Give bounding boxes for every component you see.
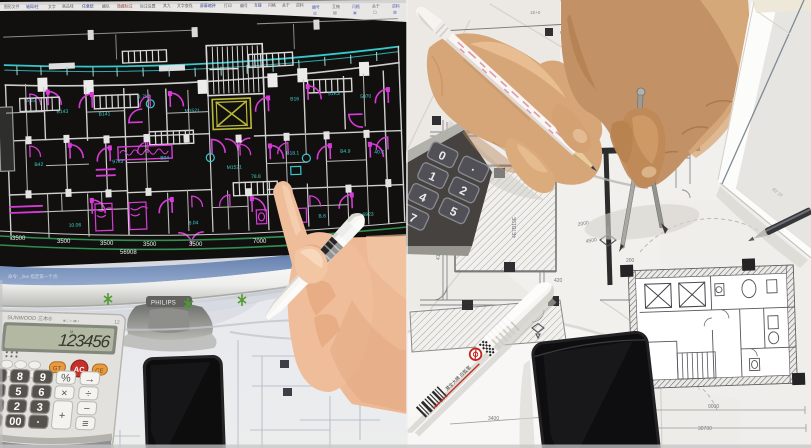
svg-text:编号: 编号 bbox=[240, 3, 248, 8]
svg-text:9: 9 bbox=[39, 372, 46, 384]
svg-text:30700: 30700 bbox=[698, 426, 712, 432]
svg-text:97k3: 97k3 bbox=[112, 159, 123, 165]
svg-text:图形文件: 图形文件 bbox=[4, 4, 20, 9]
svg-text:命令: _line 指定第一个点:: 命令: _line 指定第一个点: bbox=[8, 273, 59, 280]
svg-text:200: 200 bbox=[626, 258, 635, 264]
svg-text:3500: 3500 bbox=[143, 242, 157, 248]
svg-text:互接: 互接 bbox=[254, 3, 262, 8]
svg-text:编号: 编号 bbox=[312, 5, 320, 10]
svg-text:3: 3 bbox=[36, 402, 43, 414]
svg-text:轴网/柱: 轴网/柱 bbox=[26, 4, 39, 9]
svg-text:9000: 9000 bbox=[708, 404, 719, 410]
svg-text:6: 6 bbox=[38, 387, 45, 399]
svg-text:12: 12 bbox=[114, 320, 120, 326]
svg-text:B4.9: B4.9 bbox=[340, 148, 351, 154]
svg-text:B141: B141 bbox=[99, 111, 111, 117]
svg-text:78.8: 78.8 bbox=[251, 174, 261, 180]
svg-text:51K3: 51K3 bbox=[328, 91, 340, 97]
svg-text:2: 2 bbox=[13, 401, 20, 413]
svg-text:3500: 3500 bbox=[100, 241, 114, 247]
svg-text:打印: 打印 bbox=[224, 3, 232, 8]
svg-text:3500: 3500 bbox=[57, 239, 71, 245]
svg-text:00: 00 bbox=[9, 416, 22, 428]
svg-text:B.6: B.6 bbox=[318, 213, 326, 219]
svg-text:资料: 资料 bbox=[296, 2, 304, 7]
svg-text:▢: ▢ bbox=[373, 10, 377, 15]
svg-text:7000: 7000 bbox=[253, 239, 267, 245]
svg-text:÷: ÷ bbox=[85, 388, 92, 400]
svg-text:M1521: M1521 bbox=[227, 164, 243, 171]
svg-text:互掩: 互掩 bbox=[332, 4, 340, 9]
svg-text:B04: B04 bbox=[160, 155, 169, 161]
svg-text:1E+0: 1E+0 bbox=[530, 10, 541, 15]
svg-text:高品味: 高品味 bbox=[62, 4, 74, 9]
svg-text:资料: 资料 bbox=[392, 3, 400, 8]
svg-text:闪格: 闪格 bbox=[352, 4, 360, 9]
svg-text:≡: ≡ bbox=[81, 418, 89, 430]
svg-text:其九: 其九 bbox=[163, 3, 171, 8]
svg-text:−: − bbox=[83, 403, 91, 415]
svg-text:■ □ ▪ ▪■ ▪: ■ □ ▪ ▪■ ▪ bbox=[63, 318, 80, 323]
svg-text:标注设置: 标注设置 bbox=[140, 3, 156, 8]
svg-text:+: + bbox=[58, 410, 66, 422]
svg-text:关于: 关于 bbox=[282, 3, 290, 8]
svg-text:420: 420 bbox=[554, 278, 563, 284]
svg-text:3500: 3500 bbox=[12, 236, 26, 242]
svg-text:PHILIPS: PHILIPS bbox=[151, 301, 176, 307]
svg-text:4E7B19E: 4E7B19E bbox=[512, 216, 518, 238]
svg-text:B42: B42 bbox=[34, 162, 43, 168]
svg-text:隐藏标注: 隐藏标注 bbox=[117, 3, 133, 8]
svg-text:B16: B16 bbox=[290, 96, 299, 102]
svg-text:×: × bbox=[60, 387, 68, 399]
svg-text:文字: 文字 bbox=[48, 4, 56, 9]
svg-text:M: M bbox=[70, 329, 74, 334]
svg-text:123456: 123456 bbox=[58, 331, 112, 352]
svg-text:关于: 关于 bbox=[372, 4, 380, 9]
svg-text:▣: ▣ bbox=[353, 10, 357, 15]
svg-text:5070: 5070 bbox=[360, 94, 372, 100]
svg-text:闪格: 闪格 bbox=[268, 3, 276, 8]
svg-text:文字查找: 文字查找 bbox=[177, 3, 193, 8]
svg-text:▦: ▦ bbox=[393, 9, 397, 14]
svg-text:%: % bbox=[60, 372, 71, 384]
svg-text:5: 5 bbox=[15, 386, 22, 398]
svg-text:→: → bbox=[84, 373, 96, 385]
svg-text:3500: 3500 bbox=[189, 242, 203, 248]
svg-text:▥: ▥ bbox=[313, 11, 317, 16]
svg-text:8.04: 8.04 bbox=[189, 220, 199, 226]
svg-text:56908: 56908 bbox=[120, 250, 137, 256]
svg-text:屏幕缩钟: 屏幕缩钟 bbox=[200, 3, 216, 8]
svg-text:编队: 编队 bbox=[102, 4, 110, 9]
svg-text:▤: ▤ bbox=[333, 10, 337, 15]
svg-text:8: 8 bbox=[16, 371, 23, 383]
svg-text:10.06: 10.06 bbox=[69, 222, 82, 228]
svg-text:M1521: M1521 bbox=[184, 108, 200, 115]
svg-text:任意绕: 任意绕 bbox=[82, 4, 94, 9]
svg-text:40.2: 40.2 bbox=[374, 149, 384, 155]
